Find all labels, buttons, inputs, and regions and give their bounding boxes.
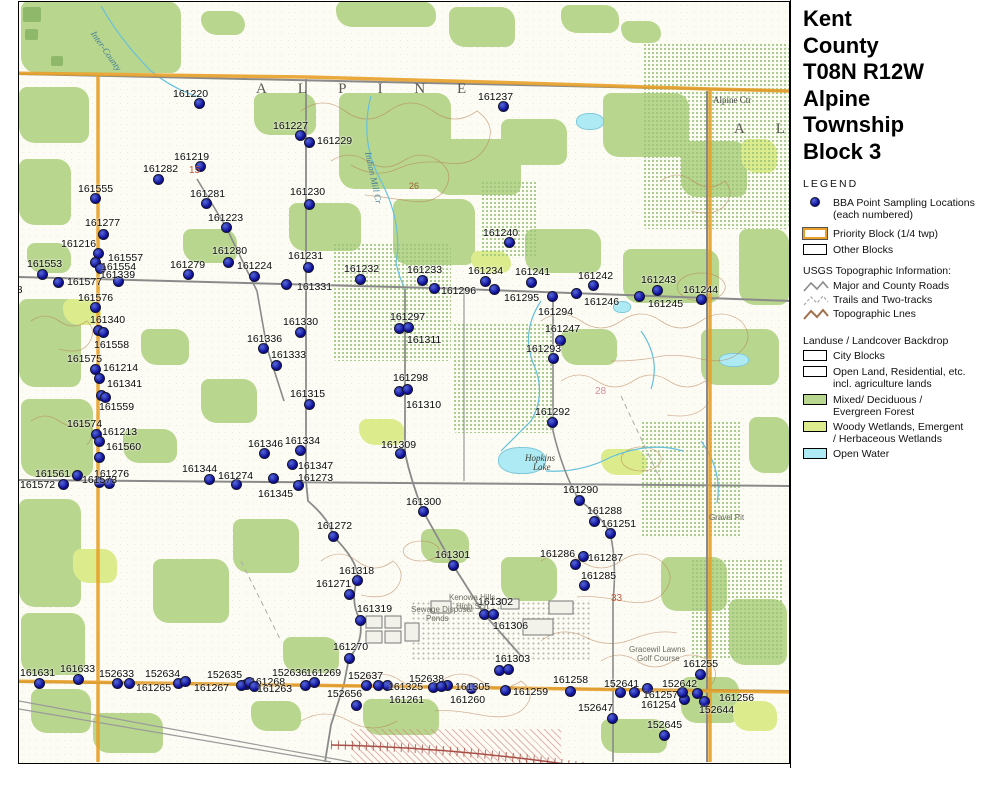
bba-point-label: 161331 <box>297 282 332 293</box>
bba-point <box>180 676 191 687</box>
bba-point-label: 161319 <box>357 604 392 615</box>
bba-point-label: 161282 <box>143 164 178 175</box>
topo-line-icon <box>803 308 829 321</box>
bba-point-label: 161227 <box>273 121 308 132</box>
bba-point-label: 161306 <box>493 621 528 632</box>
bba-point-label: 161288 <box>587 506 622 517</box>
bba-point-label: 161231 <box>288 251 323 262</box>
bba-point <box>571 288 582 299</box>
bba-point-label: 161233 <box>407 265 442 276</box>
bba-point <box>417 275 428 286</box>
bba-point-label: 161292 <box>535 407 570 418</box>
bba-label-2: (each numbered) <box>833 209 975 221</box>
bba-point-label: 161293 <box>526 344 561 355</box>
usgs-heading: USGS Topographic Information: <box>803 265 951 277</box>
legend-item-open-land: Open Land, Residential, etc. incl. agric… <box>803 366 966 390</box>
bba-point-label: 161255 <box>683 659 718 670</box>
map-document: 1612201612371612271612291612191612821615… <box>0 0 1000 768</box>
bba-point-label: 161259 <box>513 687 548 698</box>
bba-point-label: 161281 <box>190 189 225 200</box>
bba-point <box>34 678 45 689</box>
map-area: 1612201612371612271612291612191612821615… <box>0 0 790 768</box>
landuse-heading: Landuse / Landcover Backdrop <box>803 335 948 347</box>
bba-point <box>578 551 589 562</box>
bba-point-label: 161258 <box>553 675 588 686</box>
bba-point <box>607 713 618 724</box>
wetland-label-2: / Herbaceous Wetlands <box>833 433 963 445</box>
priority-block-swatch <box>803 228 827 239</box>
legend-item-trails: Trails and Two-tracks <box>803 294 932 307</box>
bba-point <box>574 495 585 506</box>
bba-point <box>295 327 306 338</box>
legend-item-city-blocks: City Blocks <box>803 350 885 362</box>
bba-point-label: 161631 <box>20 668 55 679</box>
bba-point-label: 161279 <box>170 260 205 271</box>
bba-point-label: 161310 <box>406 400 441 411</box>
topo-map: 1612201612371612271612291612191612821615… <box>18 1 790 764</box>
bba-point-label: 161229 <box>317 136 352 147</box>
bba-point-label: 161247 <box>545 324 580 335</box>
trail-line-icon <box>803 294 829 307</box>
bba-point <box>634 291 645 302</box>
place-label: Gravel Pit <box>709 513 744 522</box>
bba-point-label: 161336 <box>247 334 282 345</box>
bba-point <box>488 609 499 620</box>
bba-point <box>659 730 670 741</box>
bba-point <box>37 269 48 280</box>
bba-point <box>58 479 69 490</box>
bba-point-label: 161269 <box>306 668 341 679</box>
bba-point <box>629 687 640 698</box>
bba-point <box>489 284 500 295</box>
bba-point-label: 161573 <box>82 475 117 486</box>
bba-point-label: 161216 <box>61 239 96 250</box>
bba-point-label: 161296 <box>441 286 476 297</box>
bba-point-label: 161633 <box>60 664 95 675</box>
place-label: Ponds <box>426 614 449 623</box>
bba-point-label: 161223 <box>208 213 243 224</box>
bba-point <box>429 283 440 294</box>
bba-point-label: 161263 <box>257 684 292 695</box>
place-label: Alpine Ctr <box>713 95 751 105</box>
bba-point-label: 161300 <box>406 497 441 508</box>
legend-item-topo-lines: Topographic Lnes <box>803 308 916 321</box>
bba-point-label: 161577 <box>67 277 102 288</box>
bba-point-label: 161265 <box>136 683 171 694</box>
bba-point <box>249 271 260 282</box>
bba-point <box>328 531 339 542</box>
place-label: Kenowa Hills <box>449 593 495 602</box>
bba-point-label: 161315 <box>290 389 325 400</box>
place-label: A L <box>734 121 790 138</box>
bba-point-label: 161341 <box>107 379 142 390</box>
bba-point <box>500 685 511 696</box>
open-water-swatch <box>803 448 827 459</box>
bba-point-label: 161294 <box>538 307 573 318</box>
bba-point-label: 152642 <box>662 679 697 690</box>
bba-point-label: 161555 <box>78 184 113 195</box>
map-title: Kent County T08N R12W Alpine Township Bl… <box>803 6 924 165</box>
other-blocks-label: Other Blocks <box>833 244 893 256</box>
legend-item-priority-block: Priority Block (1/4 twp) <box>803 228 938 240</box>
bba-point-label: 161213 <box>102 427 137 438</box>
bba-point-label: 161244 <box>683 285 718 296</box>
bba-point <box>448 560 459 571</box>
title-line: Alpine <box>803 86 924 113</box>
legend-panel: Kent County T08N R12W Alpine Township Bl… <box>790 0 1000 768</box>
bba-point-label: 161241 <box>515 267 550 278</box>
place-label: Lake <box>533 462 551 472</box>
bba-point-label: 152635 <box>207 670 242 681</box>
bba-point-label: 161344 <box>182 464 217 475</box>
topo-lines-label: Topographic Lnes <box>833 308 916 320</box>
bba-point <box>304 399 315 410</box>
bba-point <box>271 360 282 371</box>
place-label: Golf Course <box>637 654 680 663</box>
bba-point-label: 161274 <box>218 471 253 482</box>
bba-point-label: 161301 <box>435 550 470 561</box>
title-line: Township <box>803 112 924 139</box>
bba-point <box>94 452 105 463</box>
bba-point-label: 161224 <box>237 261 272 272</box>
legend-item-major-roads: Major and County Roads <box>803 280 949 293</box>
forest-swatch <box>803 394 827 405</box>
bba-point-label: 161346 <box>248 439 283 450</box>
point-dot-icon <box>810 197 820 207</box>
place-label: 578 <box>18 284 23 296</box>
title-line: Kent <box>803 6 924 33</box>
bba-point-label: 161261 <box>389 695 424 706</box>
open-water-label: Open Water <box>833 448 889 460</box>
place-label: 28 <box>595 386 606 397</box>
place-label: A L P I N E <box>256 81 480 98</box>
bba-point-label: 161277 <box>85 218 120 229</box>
bba-point <box>268 473 279 484</box>
major-roads-label: Major and County Roads <box>833 280 949 292</box>
bba-point-label: 161234 <box>468 266 503 277</box>
bba-point-label: 152647 <box>578 703 613 714</box>
road-line-icon <box>803 280 829 293</box>
legend-item-open-water: Open Water <box>803 448 889 460</box>
bba-label: BBA Point Sampling Locations <box>833 197 975 209</box>
bba-point-label: 161575 <box>67 354 102 365</box>
bba-point-label: 161330 <box>283 317 318 328</box>
bba-point-label: 161286 <box>540 549 575 560</box>
trails-label: Trails and Two-tracks <box>833 294 932 306</box>
bba-point-label: 161232 <box>344 264 379 275</box>
bba-point <box>547 291 558 302</box>
bba-point <box>223 257 234 268</box>
bba-point-label: 161347 <box>298 461 333 472</box>
bba-point-label: 161303 <box>495 654 530 665</box>
place-label: 15 <box>189 165 200 176</box>
bba-point-label: 161230 <box>290 187 325 198</box>
wetland-swatch <box>803 421 827 432</box>
bba-point-label: 161251 <box>601 519 636 530</box>
legend-item-other-blocks: Other Blocks <box>803 244 893 256</box>
bba-point <box>304 137 315 148</box>
place-label: 33 <box>611 593 622 604</box>
bba-point <box>344 653 355 664</box>
bba-point-label: 161220 <box>173 89 208 100</box>
bba-point-label: 152644 <box>699 705 734 716</box>
bba-point <box>355 274 366 285</box>
bba-point-label: 161260 <box>450 695 485 706</box>
bba-point-label: 161270 <box>333 642 368 653</box>
bba-point-label: 161553 <box>27 259 62 270</box>
bba-point-label: 161318 <box>339 566 374 577</box>
open-land-label-2: incl. agriculture lands <box>833 378 966 390</box>
bba-point <box>304 199 315 210</box>
bba-point <box>344 589 355 600</box>
place-label: High Sch <box>456 602 488 611</box>
bba-point-label: 152645 <box>647 720 682 731</box>
bba-point-label: 161576 <box>78 293 113 304</box>
bba-point-label: 161246 <box>584 297 619 308</box>
bba-point-label: 161309 <box>381 440 416 451</box>
place-label: 26 <box>409 181 419 191</box>
bba-point-label: 152634 <box>145 669 180 680</box>
bba-point-label: 161240 <box>483 228 518 239</box>
bba-point <box>403 322 414 333</box>
legend-heading: LEGEND <box>803 178 858 190</box>
bba-point-label: 161271 <box>316 579 351 590</box>
bba-point <box>98 229 109 240</box>
bba-point <box>402 384 413 395</box>
title-line: T08N R12W <box>803 59 924 86</box>
bba-point-label: 161340 <box>90 315 125 326</box>
bba-point <box>526 277 537 288</box>
bba-point-label: 152656 <box>327 689 362 700</box>
bba-point-label: 161339 <box>100 270 135 281</box>
bba-point <box>652 285 663 296</box>
bba-point <box>287 459 298 470</box>
bba-point-label: 161256 <box>719 693 754 704</box>
bba-point-label: 161267 <box>194 683 229 694</box>
wetland-label: Woody Wetlands, Emergent <box>833 421 963 433</box>
bba-point <box>124 678 135 689</box>
bba-point <box>565 686 576 697</box>
bba-point <box>153 174 164 185</box>
bba-point-label: 152636 <box>272 668 307 679</box>
bba-point <box>503 664 514 675</box>
city-blocks-label: City Blocks <box>833 350 885 362</box>
bba-point-label: 161305 <box>455 682 490 693</box>
railroad <box>331 745 586 763</box>
bba-point <box>436 681 447 692</box>
bba-point <box>355 615 366 626</box>
place-label: Gracewil Lawns <box>629 645 685 654</box>
bba-point-label: 161242 <box>578 271 613 282</box>
bba-point-label: 161219 <box>174 152 209 163</box>
bba-point-label: 161272 <box>317 521 352 532</box>
bba-point <box>480 276 491 287</box>
bba-point <box>351 700 362 711</box>
bba-point-label: 161345 <box>258 489 293 500</box>
bba-point-label: 161334 <box>285 436 320 447</box>
bba-point-label: 161243 <box>641 275 676 286</box>
bba-point <box>94 373 105 384</box>
bba-point-label: 161295 <box>504 293 539 304</box>
bba-point <box>373 680 384 691</box>
city-blocks-swatch <box>803 350 827 361</box>
bba-point <box>73 674 84 685</box>
open-land-swatch <box>803 366 827 377</box>
legend-item-bba-points: BBA Point Sampling Locations (each numbe… <box>803 197 975 221</box>
bba-point-label: 161574 <box>67 419 102 430</box>
bba-point-label: 161280 <box>212 246 247 257</box>
bba-point <box>53 277 64 288</box>
open-land-label: Open Land, Residential, etc. <box>833 366 966 378</box>
bba-point-label: 161245 <box>648 299 683 310</box>
title-line: County <box>803 33 924 60</box>
bba-point-label: 161333 <box>271 350 306 361</box>
bba-point-label: 161298 <box>393 373 428 384</box>
bba-point <box>98 327 109 338</box>
bba-point-label: 161290 <box>563 485 598 496</box>
bba-point-label: 161287 <box>588 553 623 564</box>
legend-item-forest: Mixed/ Deciduous / Evergreen Forest <box>803 394 922 418</box>
bba-point-label: 161254 <box>641 700 676 711</box>
bba-point <box>303 262 314 273</box>
bba-point-symbol <box>803 197 833 207</box>
bba-point-label: 161311 <box>407 335 441 346</box>
bba-point <box>589 516 600 527</box>
bba-point-label: 161237 <box>478 92 513 103</box>
bba-point-label: 161558 <box>94 340 129 351</box>
bba-point-label: 161572 <box>20 480 55 491</box>
bba-point-label: 161560 <box>106 442 141 453</box>
bba-point <box>695 669 706 680</box>
bba-point-label: 161214 <box>103 363 138 374</box>
bba-point <box>204 474 215 485</box>
bba-point <box>72 470 83 481</box>
priority-block-label: Priority Block (1/4 twp) <box>833 228 938 240</box>
bba-point-label: 161285 <box>581 571 616 582</box>
other-blocks-swatch <box>803 244 827 255</box>
forest-label: Mixed/ Deciduous / <box>833 394 922 406</box>
forest-label-2: Evergreen Forest <box>833 406 922 418</box>
title-line: Block 3 <box>803 139 924 166</box>
bba-point <box>293 480 304 491</box>
legend-item-wetland: Woody Wetlands, Emergent / Herbaceous We… <box>803 421 963 445</box>
bba-point <box>547 417 558 428</box>
bba-point-label: 161559 <box>99 402 134 413</box>
bba-point <box>281 279 292 290</box>
